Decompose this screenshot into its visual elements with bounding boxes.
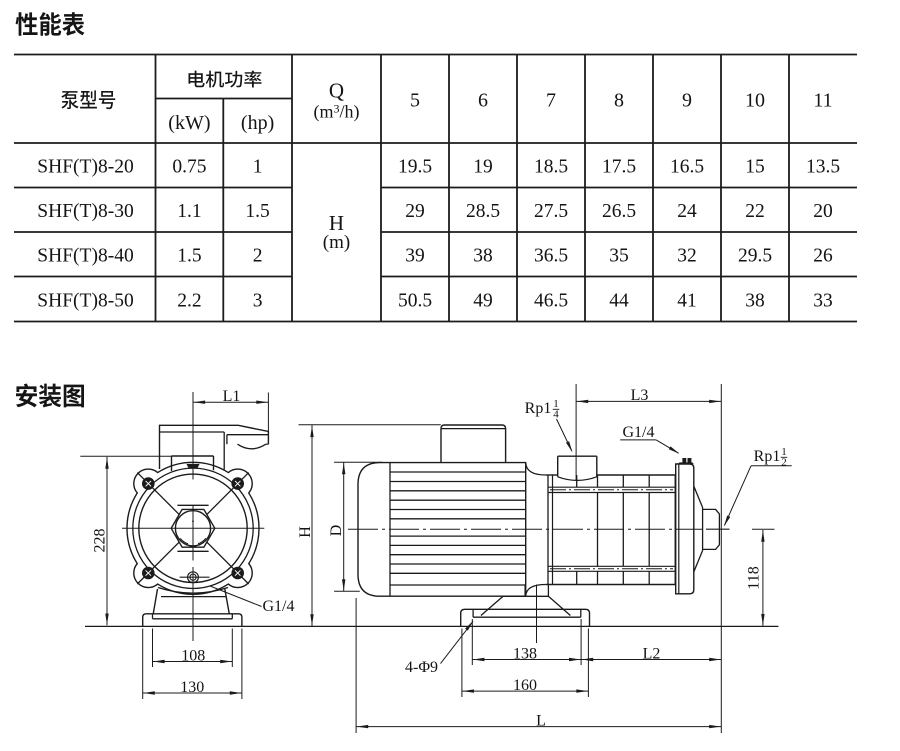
svg-text:2: 2	[253, 246, 263, 267]
svg-text:39: 39	[405, 246, 425, 267]
svg-text:L: L	[536, 712, 546, 729]
svg-text:6: 6	[478, 90, 488, 112]
svg-text:G1/4: G1/4	[623, 424, 655, 441]
svg-text:Q: Q	[329, 79, 344, 103]
svg-text:35: 35	[609, 246, 629, 267]
svg-text:20: 20	[813, 201, 833, 222]
svg-text:D: D	[328, 525, 345, 537]
svg-text:2: 2	[781, 457, 787, 469]
svg-text:13.5: 13.5	[806, 157, 840, 178]
svg-text:22: 22	[745, 201, 765, 222]
svg-text:Rp1: Rp1	[525, 400, 552, 417]
svg-text:26: 26	[813, 246, 833, 267]
svg-text:138: 138	[513, 645, 537, 662]
svg-text:1.5: 1.5	[245, 201, 269, 222]
svg-text:L1: L1	[223, 388, 241, 405]
svg-text:29.5: 29.5	[738, 246, 772, 267]
svg-text:SHF(T)8-50: SHF(T)8-50	[37, 290, 133, 311]
svg-text:(m): (m)	[323, 232, 350, 253]
svg-text:SHF(T)8-20: SHF(T)8-20	[37, 157, 133, 178]
svg-text:41: 41	[677, 290, 697, 311]
svg-text:29: 29	[405, 201, 425, 222]
svg-text:38: 38	[745, 290, 765, 311]
svg-text:108: 108	[181, 647, 205, 664]
svg-text:33: 33	[813, 290, 833, 311]
svg-text:11: 11	[813, 90, 832, 112]
svg-text:24: 24	[677, 201, 697, 222]
svg-text:SHF(T)8-30: SHF(T)8-30	[37, 201, 133, 222]
svg-text:28.5: 28.5	[466, 201, 500, 222]
svg-text:26.5: 26.5	[602, 201, 636, 222]
svg-text:49: 49	[473, 290, 493, 311]
svg-text:SHF(T)8-40: SHF(T)8-40	[37, 246, 133, 267]
svg-text:46.5: 46.5	[534, 290, 568, 311]
svg-text:7: 7	[546, 90, 556, 112]
svg-text:(m3/h): (m3/h)	[314, 102, 360, 123]
svg-text:160: 160	[513, 677, 537, 694]
svg-text:H: H	[297, 526, 314, 538]
svg-text:8: 8	[614, 90, 624, 112]
svg-text:3: 3	[253, 290, 263, 311]
svg-text:44: 44	[609, 290, 629, 311]
svg-text:Rp1: Rp1	[754, 448, 781, 465]
svg-text:L3: L3	[631, 387, 649, 404]
svg-text:19: 19	[473, 157, 493, 178]
svg-text:5: 5	[410, 90, 420, 112]
svg-text:(hp): (hp)	[241, 112, 274, 134]
svg-text:1.1: 1.1	[177, 201, 201, 222]
svg-text:15: 15	[745, 157, 765, 178]
svg-text:(kW): (kW)	[168, 112, 210, 134]
svg-text:130: 130	[180, 679, 204, 696]
svg-text:19.5: 19.5	[398, 157, 432, 178]
svg-text:9: 9	[682, 90, 692, 112]
svg-text:4-Φ9: 4-Φ9	[405, 659, 438, 676]
svg-text:32: 32	[677, 246, 697, 267]
svg-text:4: 4	[553, 409, 559, 421]
svg-text:0.75: 0.75	[172, 157, 206, 178]
svg-text:228: 228	[91, 529, 108, 553]
svg-text:L2: L2	[643, 645, 661, 662]
svg-text:17.5: 17.5	[602, 157, 636, 178]
svg-text:10: 10	[745, 90, 765, 112]
svg-text:50.5: 50.5	[398, 290, 432, 311]
svg-text:118: 118	[745, 566, 762, 589]
svg-text:16.5: 16.5	[670, 157, 704, 178]
svg-text:27.5: 27.5	[534, 201, 568, 222]
svg-text:1: 1	[253, 157, 263, 178]
svg-text:36.5: 36.5	[534, 246, 568, 267]
svg-text:38: 38	[473, 246, 493, 267]
svg-text:1.5: 1.5	[177, 246, 201, 267]
svg-text:G1/4: G1/4	[263, 598, 295, 615]
svg-text:18.5: 18.5	[534, 157, 568, 178]
svg-text:2.2: 2.2	[177, 290, 201, 311]
